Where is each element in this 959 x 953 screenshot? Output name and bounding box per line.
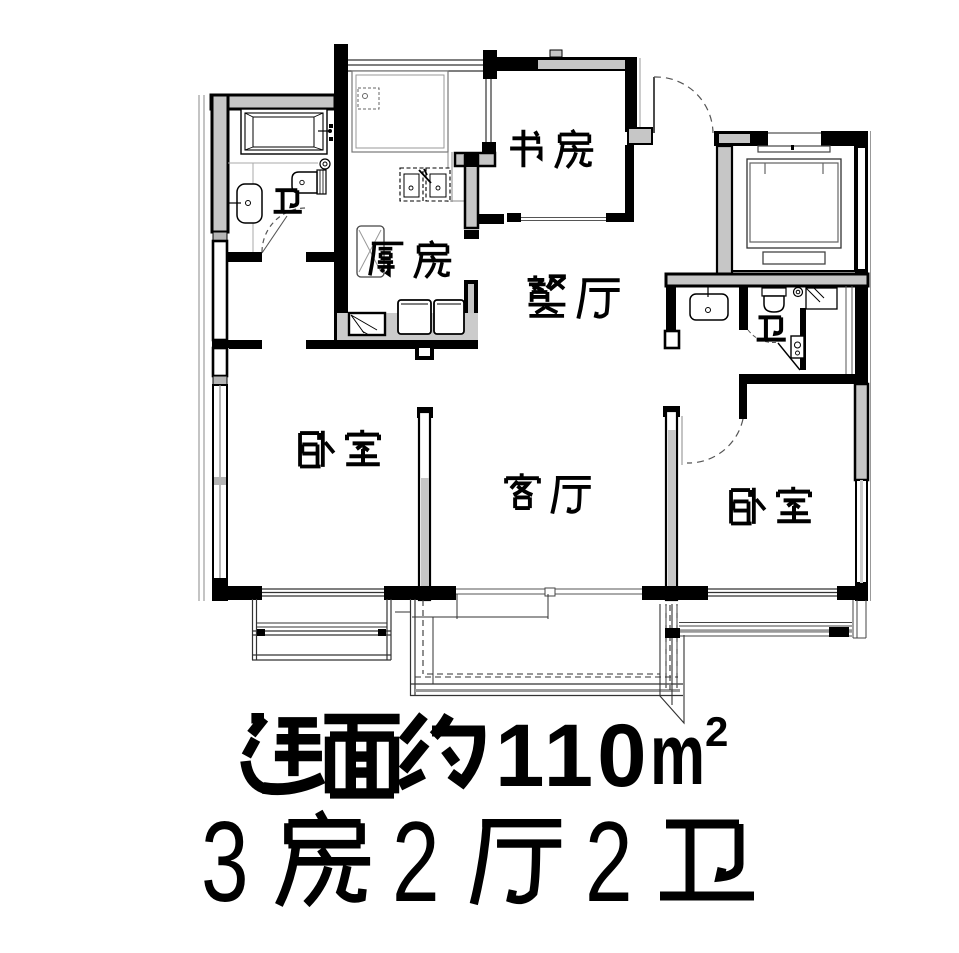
svg-text:110: 110	[495, 705, 651, 805]
svg-text:3: 3	[201, 799, 249, 926]
svg-text:2: 2	[585, 799, 633, 926]
svg-text:m: m	[650, 706, 705, 802]
svg-text:2: 2	[705, 708, 728, 755]
svg-text:2: 2	[392, 799, 440, 926]
